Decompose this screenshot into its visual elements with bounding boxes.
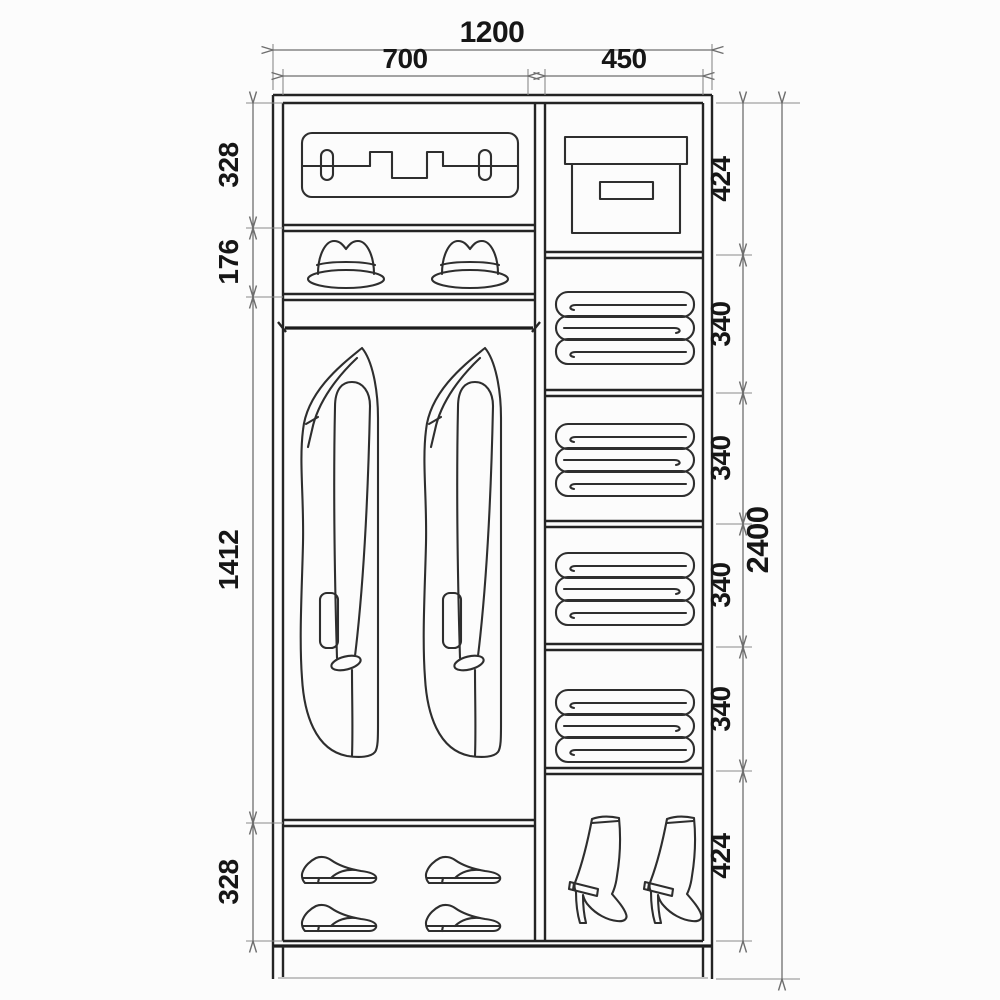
dim-label-left-1: 328 — [213, 142, 244, 187]
boot-icon — [569, 817, 627, 923]
center-divider-panel — [535, 103, 545, 941]
left-shelf-1 — [283, 225, 535, 231]
dim-label-left-4: 328 — [213, 859, 244, 904]
right-shelf-2 — [545, 390, 703, 396]
boot-icon — [644, 817, 702, 923]
dim-label-right-5: 340 — [705, 686, 736, 731]
left-side-panel — [273, 95, 283, 946]
shoe-icon — [302, 857, 376, 883]
dim-label-right-6: 424 — [705, 832, 736, 878]
hanging-rail-icon — [278, 322, 540, 332]
folded-linen-icon — [556, 553, 694, 625]
folded-linen-icon — [556, 424, 694, 496]
right-shelf-4 — [545, 644, 703, 650]
shoe-icon — [426, 857, 500, 883]
dim-label-right-4: 340 — [705, 562, 736, 607]
left-shelf-3 — [283, 820, 535, 826]
cabinet-structure — [273, 95, 712, 979]
left-extension-lines — [246, 103, 283, 941]
left-shelf-2 — [283, 294, 535, 300]
shoe-icon — [426, 905, 500, 931]
plinth-feet — [273, 946, 712, 979]
dim-label-right-3: 340 — [705, 435, 736, 480]
right-shelf-3 — [545, 521, 703, 527]
dim-label-left-3: 1412 — [213, 530, 244, 590]
shoe-icon — [302, 905, 376, 931]
dim-label-left-2: 176 — [213, 239, 244, 284]
dim-label-total-height: 2400 — [740, 507, 775, 574]
dim-label-left-width: 700 — [382, 43, 427, 74]
coat-icon — [424, 348, 501, 757]
drawing-canvas: 1200 700 450 328 176 1412 328 424 340 34… — [0, 0, 1000, 1000]
wardrobe-dimension-drawing: 1200 700 450 328 176 1412 328 424 340 34… — [0, 0, 1000, 1000]
right-side-panel — [703, 95, 712, 946]
dim-label-right-1: 424 — [705, 155, 736, 201]
hat-icon — [308, 241, 384, 288]
dim-label-right-2: 340 — [705, 301, 736, 346]
dim-label-total-width: 1200 — [460, 16, 525, 49]
storage-box-icon — [565, 137, 687, 233]
coat-icon — [301, 348, 378, 757]
hat-icon — [432, 241, 508, 288]
folded-linen-icon — [556, 690, 694, 762]
suitcase-icon — [302, 133, 518, 197]
right-shelf-5 — [545, 768, 703, 774]
dim-label-right-width: 450 — [601, 43, 646, 74]
folded-linen-icon — [556, 292, 694, 364]
right-shelf-1 — [545, 252, 703, 258]
